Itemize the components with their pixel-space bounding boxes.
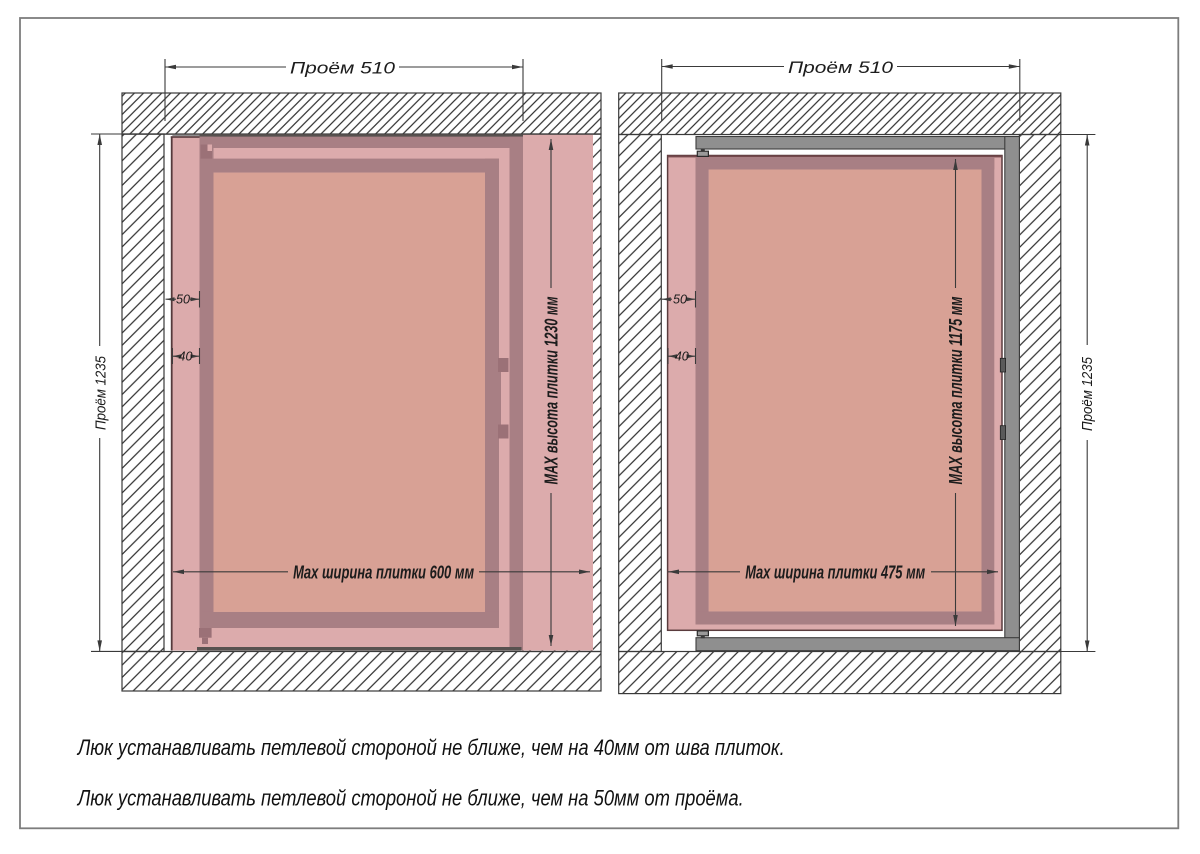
svg-text:Проём 1235: Проём 1235 — [93, 355, 110, 430]
svg-text:Проём 510: Проём 510 — [290, 59, 396, 78]
svg-text:MAX высота плитки 1230 мм: MAX высота плитки 1230 мм — [542, 297, 562, 485]
svg-text:40: 40 — [179, 349, 194, 364]
svg-text:40: 40 — [675, 349, 690, 364]
svg-text:50: 50 — [176, 292, 191, 307]
svg-text:50: 50 — [673, 292, 688, 307]
svg-text:Проём 510: Проём 510 — [788, 58, 894, 77]
svg-text:Люк устанавливать петлевой сто: Люк устанавливать петлевой стороной не б… — [76, 735, 785, 760]
svg-text:Max ширина плитки 475 мм: Max ширина плитки 475 мм — [745, 562, 925, 582]
svg-text:Проём 1235: Проём 1235 — [1079, 356, 1096, 431]
svg-text:Люк устанавливать петлевой сто: Люк устанавливать петлевой стороной не б… — [76, 785, 744, 810]
svg-text:MAX высота плитки 1175 мм: MAX высота плитки 1175 мм — [946, 297, 966, 485]
svg-text:Max ширина плитки 600 мм: Max ширина плитки 600 мм — [293, 562, 474, 582]
